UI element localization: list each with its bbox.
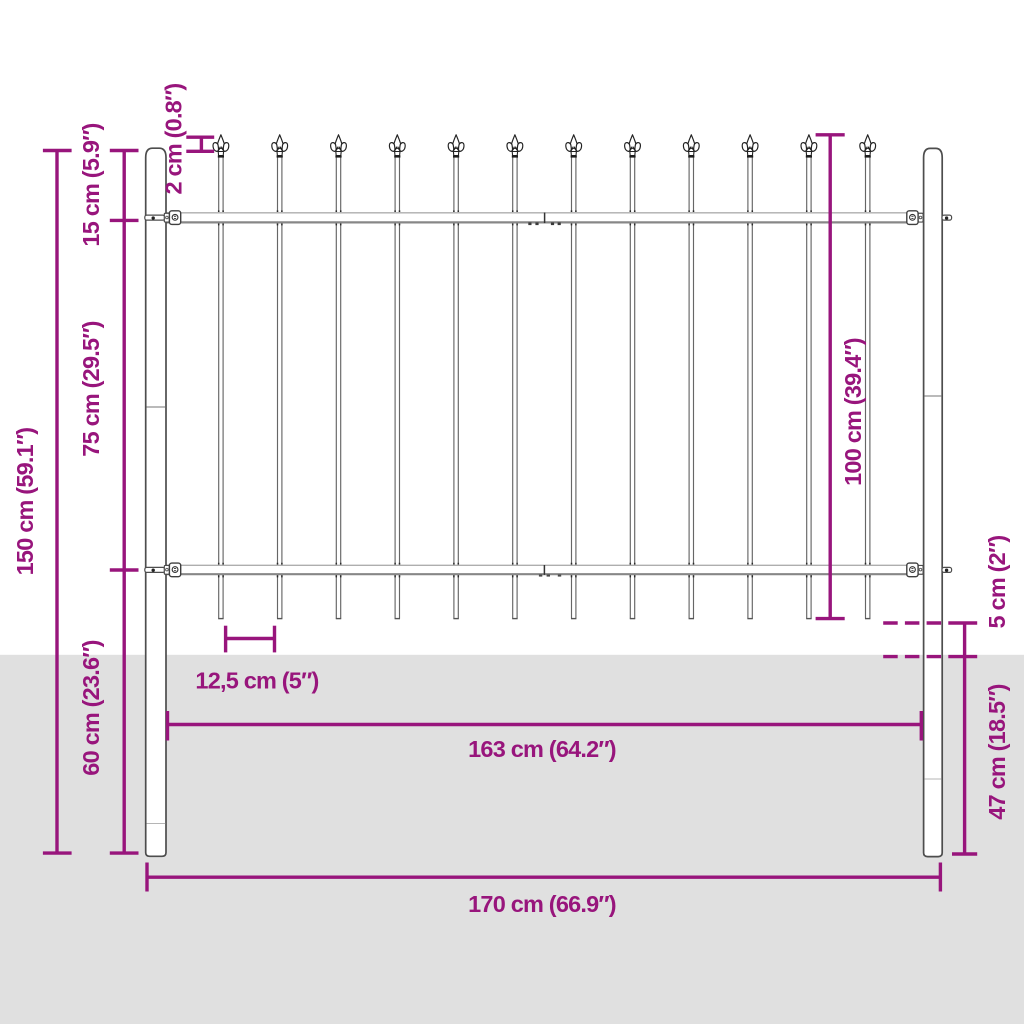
svg-text:100 cm (39.4″): 100 cm (39.4″) — [840, 338, 866, 486]
svg-text:2 cm (0.8″): 2 cm (0.8″) — [161, 84, 187, 195]
svg-text:75 cm (29.5″): 75 cm (29.5″) — [78, 321, 104, 456]
svg-text:60 cm (23.6″): 60 cm (23.6″) — [78, 640, 104, 775]
svg-text:47 cm (18.5″): 47 cm (18.5″) — [984, 684, 1010, 819]
svg-text:5 cm (2″): 5 cm (2″) — [984, 536, 1010, 629]
svg-text:15 cm (5.9″): 15 cm (5.9″) — [78, 123, 104, 246]
svg-text:150 cm (59.1″): 150 cm (59.1″) — [12, 428, 38, 576]
svg-text:170 cm (66.9″): 170 cm (66.9″) — [468, 891, 616, 917]
svg-text:12,5 cm (5″): 12,5 cm (5″) — [195, 668, 318, 694]
svg-text:163 cm (64.2″): 163 cm (64.2″) — [468, 736, 616, 762]
